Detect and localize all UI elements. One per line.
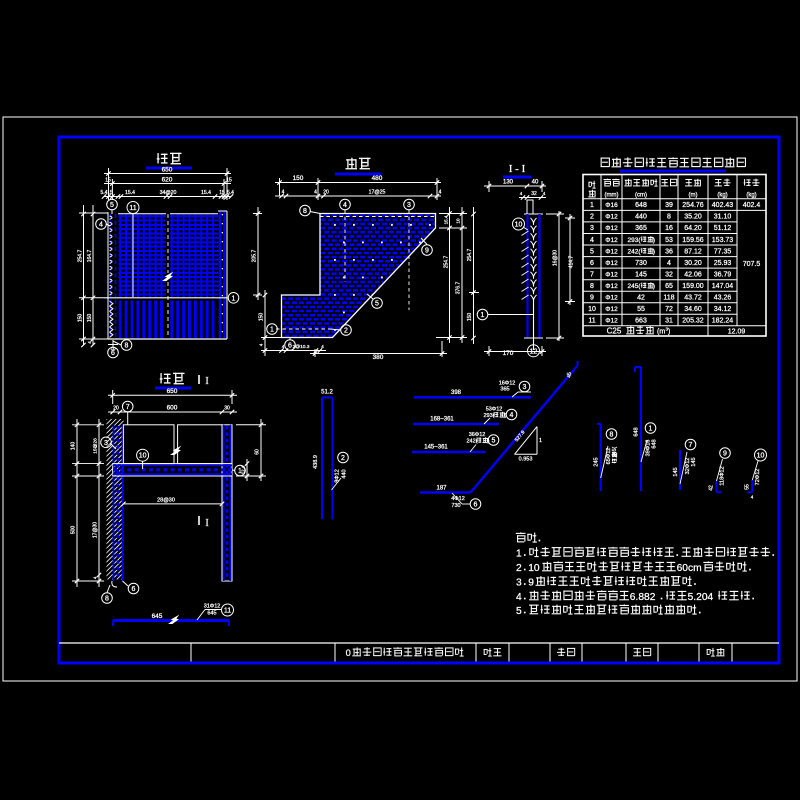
- svg-text:187: 187: [436, 486, 447, 492]
- svg-text:11: 11: [129, 205, 136, 212]
- svg-text:254.76: 254.76: [682, 202, 704, 209]
- svg-text:17@25: 17@25: [369, 190, 386, 196]
- svg-text:Φ12: Φ12: [605, 248, 618, 255]
- svg-text:11: 11: [224, 608, 231, 615]
- svg-text:7: 7: [689, 442, 693, 449]
- svg-text:): ): [653, 283, 655, 290]
- svg-text:150: 150: [78, 314, 84, 323]
- svg-text:): ): [668, 329, 670, 336]
- svg-text:2: 2: [344, 328, 348, 335]
- svg-text:159.00: 159.00: [682, 283, 704, 290]
- svg-text:365: 365: [500, 387, 509, 393]
- svg-text:145: 145: [691, 457, 697, 466]
- svg-text:15: 15: [107, 190, 113, 196]
- svg-text:(m: (m: [657, 329, 665, 336]
- svg-text:12.09: 12.09: [728, 329, 746, 336]
- svg-text:182.24: 182.24: [712, 318, 734, 325]
- svg-text:8Φ12: 8Φ12: [335, 469, 341, 483]
- svg-text:1: 1: [649, 426, 653, 433]
- svg-text:43.26: 43.26: [714, 295, 732, 302]
- svg-text:254.7: 254.7: [444, 256, 450, 269]
- svg-text:650: 650: [167, 388, 178, 395]
- svg-text:8: 8: [667, 214, 671, 221]
- svg-text:15: 15: [219, 190, 225, 196]
- svg-text:10: 10: [757, 453, 765, 460]
- svg-text:707.5: 707.5: [743, 261, 761, 268]
- svg-text:51.2: 51.2: [321, 390, 333, 396]
- svg-text:42: 42: [637, 295, 645, 302]
- svg-text:36: 36: [665, 248, 673, 255]
- svg-text:4: 4: [667, 260, 671, 267]
- svg-text:Φ12: Φ12: [605, 260, 618, 267]
- svg-text:650: 650: [162, 167, 173, 174]
- svg-text:402.4: 402.4: [743, 202, 761, 209]
- svg-text:5: 5: [516, 606, 522, 617]
- svg-text:8: 8: [590, 283, 594, 290]
- svg-text:15: 15: [105, 178, 111, 184]
- svg-text:20: 20: [113, 406, 119, 412]
- svg-text:1: 1: [539, 438, 542, 444]
- svg-text:I - I: I - I: [509, 163, 526, 175]
- svg-text:130: 130: [503, 180, 514, 186]
- svg-text:9: 9: [528, 578, 534, 589]
- svg-text:): ): [653, 237, 655, 244]
- svg-text:6: 6: [111, 350, 115, 357]
- svg-text:36Φ12: 36Φ12: [469, 432, 486, 438]
- svg-text:C25: C25: [607, 327, 622, 336]
- svg-text:I: I: [205, 518, 208, 529]
- svg-text:3: 3: [104, 440, 108, 447]
- svg-text:3: 3: [516, 578, 522, 589]
- svg-text:440: 440: [635, 214, 647, 221]
- svg-text:): ): [653, 248, 655, 255]
- svg-text:65: 65: [665, 283, 673, 290]
- svg-text:242(: 242(: [627, 248, 641, 255]
- svg-text:150: 150: [259, 313, 265, 322]
- svg-text:20: 20: [323, 190, 329, 196]
- svg-text:8: 8: [610, 432, 614, 439]
- svg-text:11: 11: [588, 318, 595, 325]
- svg-text:4: 4: [516, 592, 522, 603]
- svg-text:Φ12: Φ12: [605, 237, 618, 244]
- svg-text:6: 6: [590, 260, 594, 267]
- svg-text:(mm): (mm): [605, 193, 619, 199]
- svg-text:Φ12: Φ12: [605, 318, 618, 325]
- svg-text:6: 6: [132, 586, 136, 593]
- svg-text:36.79: 36.79: [714, 271, 732, 278]
- svg-text:Φ12: Φ12: [605, 306, 618, 313]
- svg-text:245: 245: [594, 457, 600, 466]
- svg-text:39: 39: [665, 202, 673, 209]
- svg-text:150: 150: [467, 313, 473, 322]
- svg-text:25.93: 25.93: [714, 260, 732, 267]
- svg-text:5.4: 5.4: [227, 190, 234, 196]
- svg-text:64.20: 64.20: [684, 225, 702, 232]
- svg-text:15.4: 15.4: [444, 215, 449, 224]
- svg-text:31.10: 31.10: [714, 214, 732, 221]
- svg-text:4: 4: [314, 190, 317, 196]
- svg-text:34@20: 34@20: [160, 190, 177, 196]
- svg-text:2: 2: [516, 563, 522, 574]
- svg-text:15.4: 15.4: [201, 190, 211, 196]
- svg-text:17@30: 17@30: [93, 522, 99, 538]
- svg-text:8: 8: [303, 208, 307, 215]
- svg-text:150: 150: [293, 175, 304, 182]
- svg-text:6.882: 6.882: [630, 592, 656, 603]
- svg-text:645: 645: [207, 611, 216, 617]
- svg-text:480: 480: [372, 175, 383, 182]
- svg-text:16: 16: [665, 225, 673, 232]
- svg-text:2: 2: [341, 455, 345, 462]
- svg-text:9: 9: [723, 451, 727, 458]
- svg-text:5: 5: [492, 438, 496, 445]
- svg-text:5: 5: [590, 248, 594, 255]
- svg-text:Φ16: Φ16: [605, 202, 618, 209]
- svg-text:10: 10: [515, 222, 523, 229]
- svg-text:15@26: 15@26: [93, 438, 99, 454]
- svg-text:10: 10: [456, 218, 461, 224]
- svg-text:380: 380: [373, 354, 384, 361]
- svg-text:5.204: 5.204: [688, 592, 714, 603]
- svg-text:10: 10: [588, 306, 596, 313]
- svg-text:402.43: 402.43: [712, 202, 734, 209]
- svg-text:4: 4: [439, 190, 442, 196]
- svg-text:663: 663: [635, 318, 647, 325]
- svg-text:16@30: 16@30: [553, 250, 559, 266]
- svg-text:438.9: 438.9: [313, 455, 319, 469]
- svg-text:Φ12: Φ12: [605, 283, 618, 290]
- svg-text:10: 10: [528, 563, 540, 574]
- svg-text:35.20: 35.20: [684, 214, 702, 221]
- svg-text:414.7: 414.7: [569, 256, 575, 269]
- svg-text:42.06: 42.06: [684, 271, 702, 278]
- svg-text:170: 170: [503, 350, 514, 357]
- svg-text:242(: 242(: [466, 439, 477, 445]
- svg-text:10: 10: [110, 346, 116, 351]
- svg-text:3: 3: [590, 225, 594, 232]
- svg-text:5: 5: [110, 202, 114, 209]
- svg-text:153.73: 153.73: [712, 237, 734, 244]
- svg-text:0.953: 0.953: [519, 457, 533, 463]
- svg-text:245(: 245(: [627, 283, 641, 290]
- svg-text:60cm: 60cm: [677, 563, 702, 574]
- svg-text:43.72: 43.72: [684, 295, 702, 302]
- svg-text:45: 45: [567, 372, 573, 378]
- svg-text:254.7: 254.7: [78, 250, 84, 263]
- svg-text:8: 8: [105, 596, 109, 603]
- svg-text:28@30: 28@30: [157, 498, 175, 504]
- svg-text:293(: 293(: [483, 413, 494, 419]
- svg-text:30: 30: [224, 406, 230, 412]
- svg-text:55: 55: [745, 484, 751, 490]
- svg-text:648: 648: [652, 439, 658, 448]
- svg-text:150: 150: [87, 314, 93, 323]
- svg-text:9: 9: [590, 295, 594, 302]
- svg-text:620: 620: [162, 177, 173, 184]
- svg-text:Φ12: Φ12: [605, 214, 618, 221]
- svg-text:168~361: 168~361: [430, 417, 454, 423]
- svg-text:376.7: 376.7: [456, 282, 462, 295]
- svg-text:645: 645: [152, 613, 163, 620]
- svg-text:1: 1: [270, 327, 274, 334]
- svg-text:164.7: 164.7: [87, 250, 93, 263]
- svg-text:4: 4: [99, 222, 103, 229]
- svg-text:16Φ12: 16Φ12: [499, 381, 516, 387]
- svg-text:118Φ12: 118Φ12: [720, 466, 726, 485]
- svg-text:1: 1: [232, 295, 236, 302]
- svg-text:6: 6: [288, 343, 292, 350]
- svg-text:30.20: 30.20: [684, 260, 702, 267]
- svg-text:7: 7: [590, 271, 594, 278]
- svg-text:6: 6: [474, 502, 478, 509]
- svg-text:31: 31: [665, 318, 673, 325]
- svg-text:32: 32: [531, 191, 537, 197]
- svg-text:145: 145: [673, 467, 679, 476]
- svg-text:500: 500: [71, 526, 77, 535]
- svg-text:118: 118: [663, 295, 674, 302]
- svg-text:40: 40: [532, 180, 539, 186]
- svg-text:0: 0: [346, 648, 351, 658]
- svg-text:Φ12: Φ12: [605, 271, 618, 278]
- svg-text:53Φ12: 53Φ12: [486, 407, 503, 413]
- svg-text:3: 3: [523, 384, 527, 391]
- svg-text:Φ12: Φ12: [605, 295, 618, 302]
- svg-text:147.04: 147.04: [712, 283, 734, 290]
- svg-text:1: 1: [516, 549, 522, 560]
- svg-text:32: 32: [665, 271, 673, 278]
- svg-text:4Φ12: 4Φ12: [451, 496, 465, 502]
- svg-text:2: 2: [590, 214, 594, 221]
- svg-text:254.7: 254.7: [467, 249, 473, 262]
- svg-text:15.4: 15.4: [125, 190, 135, 196]
- svg-text:730: 730: [635, 260, 647, 267]
- svg-text:1: 1: [590, 202, 594, 209]
- svg-text:53: 53: [665, 237, 673, 244]
- svg-text:51.12: 51.12: [714, 225, 732, 232]
- svg-text:(m): (m): [689, 193, 698, 199]
- svg-text:365: 365: [635, 225, 647, 232]
- svg-text:10: 10: [139, 453, 147, 460]
- svg-text:8: 8: [125, 343, 129, 350]
- svg-text:398: 398: [451, 390, 462, 396]
- svg-text:648: 648: [635, 202, 647, 209]
- svg-text:1: 1: [481, 312, 485, 319]
- svg-text:34.60: 34.60: [684, 306, 702, 313]
- svg-text:77.35: 77.35: [714, 248, 732, 255]
- svg-text:648: 648: [634, 427, 640, 436]
- svg-text:7: 7: [126, 404, 130, 411]
- svg-text:145: 145: [635, 271, 647, 278]
- svg-text:205.32: 205.32: [682, 318, 704, 325]
- svg-text:600: 600: [167, 405, 178, 412]
- svg-text:(kg): (kg): [746, 193, 756, 199]
- svg-text:205.7: 205.7: [252, 250, 258, 263]
- svg-text:55: 55: [637, 306, 645, 313]
- svg-text:4: 4: [343, 202, 347, 209]
- svg-text:34.12: 34.12: [714, 306, 732, 313]
- svg-text:42: 42: [709, 485, 715, 491]
- svg-text:72Φ12: 72Φ12: [755, 469, 761, 486]
- svg-text:159.56: 159.56: [682, 237, 704, 244]
- svg-text:140: 140: [71, 442, 77, 451]
- svg-text:I: I: [205, 376, 208, 387]
- svg-text:72: 72: [665, 306, 673, 313]
- svg-text:4: 4: [282, 190, 285, 196]
- svg-text:5: 5: [375, 301, 379, 308]
- svg-text:(cm): (cm): [635, 193, 647, 199]
- svg-text:9: 9: [425, 248, 429, 255]
- svg-text:4: 4: [590, 237, 594, 244]
- svg-text:4: 4: [510, 412, 514, 419]
- svg-text:293(: 293(: [627, 237, 641, 244]
- svg-text:145~361: 145~361: [424, 445, 448, 451]
- svg-text:3: 3: [407, 202, 411, 209]
- svg-text:87.12: 87.12: [684, 248, 702, 255]
- svg-text:(kg): (kg): [717, 193, 727, 199]
- svg-text:15: 15: [226, 178, 232, 184]
- svg-text:Φ12: Φ12: [605, 225, 618, 232]
- svg-text:60: 60: [255, 449, 261, 455]
- svg-text:1: 1: [238, 468, 242, 475]
- svg-text:31Φ12: 31Φ12: [204, 604, 221, 610]
- svg-text:730: 730: [451, 503, 460, 509]
- svg-text:440: 440: [342, 469, 348, 478]
